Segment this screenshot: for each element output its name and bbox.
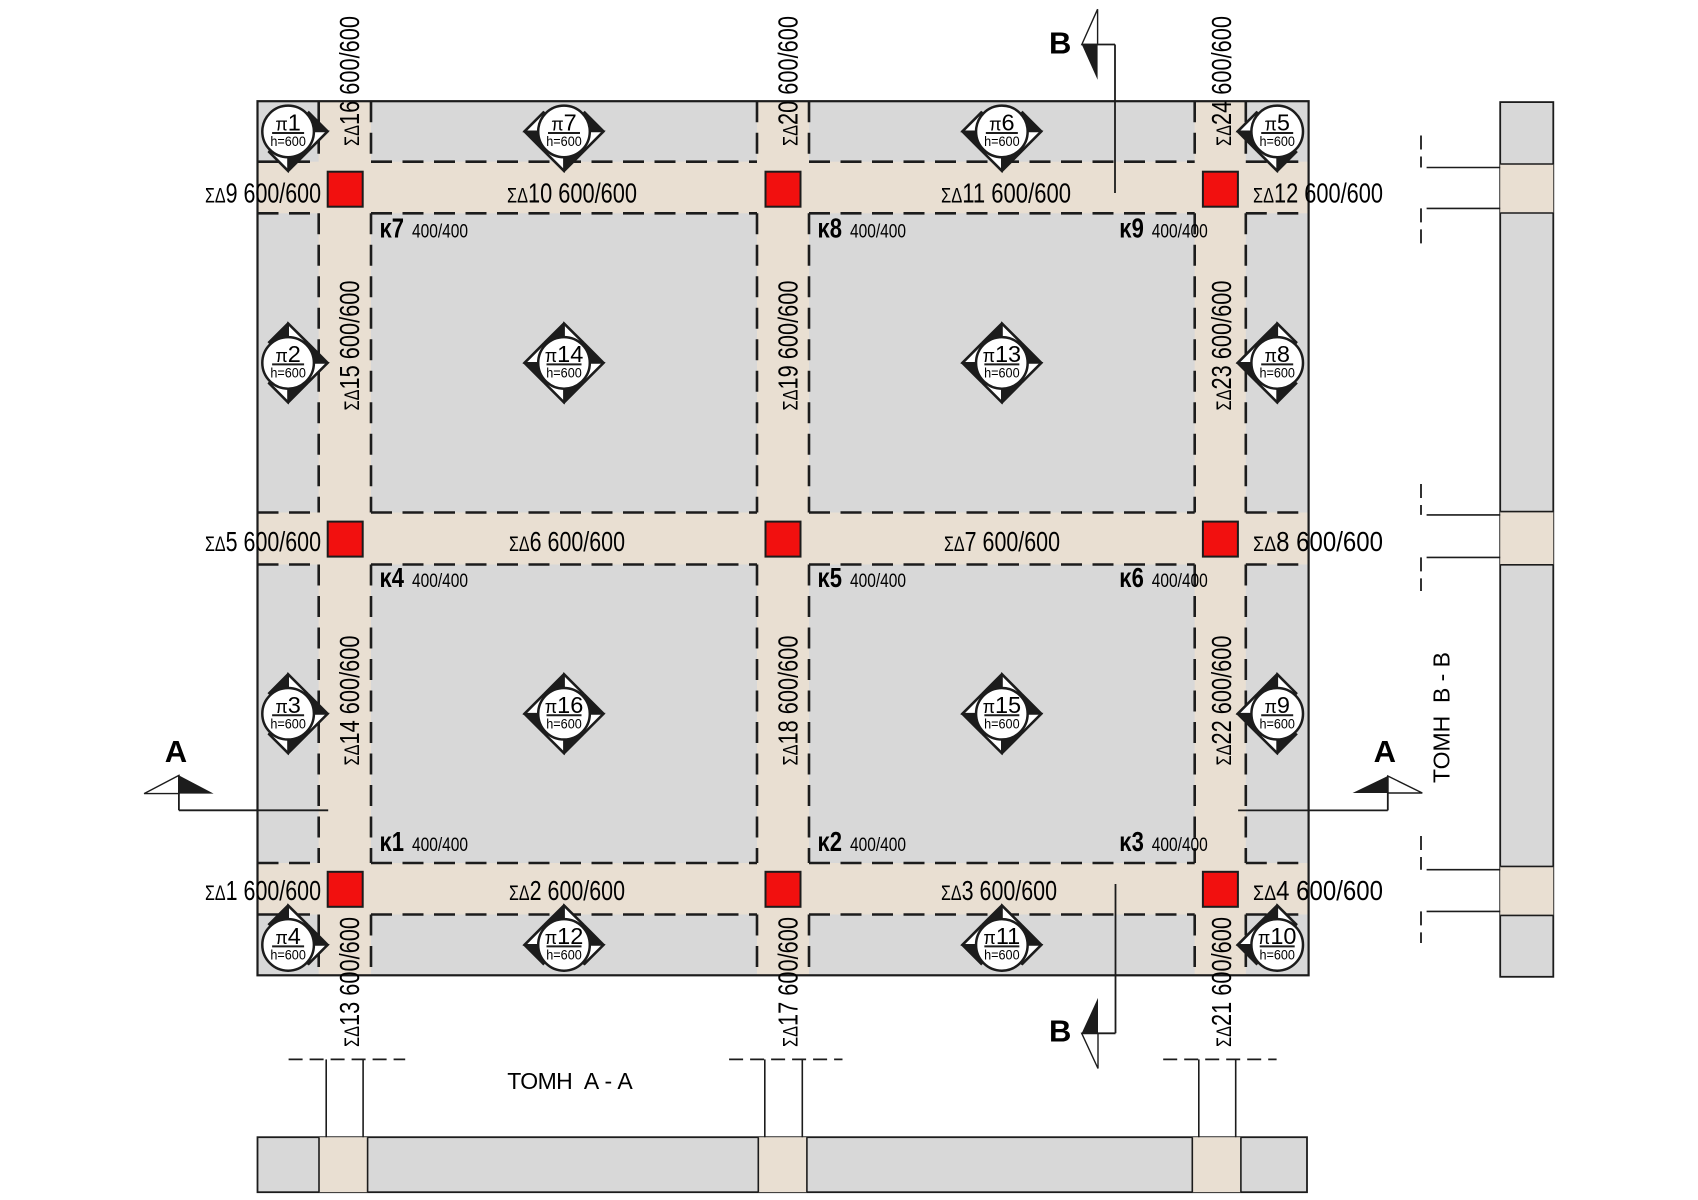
svg-text:400/400: 400/400 bbox=[1152, 571, 1208, 592]
svg-text:TOMH A - A: TOMH A - A bbox=[507, 1068, 633, 1094]
svg-text:B: B bbox=[1049, 1014, 1071, 1049]
svg-text:h=600: h=600 bbox=[1259, 716, 1295, 731]
svg-text:h=600: h=600 bbox=[1259, 365, 1295, 380]
svg-text:400/400: 400/400 bbox=[412, 221, 468, 242]
svg-text:h=600: h=600 bbox=[546, 716, 582, 731]
svg-text:κ2: κ2 bbox=[818, 826, 843, 857]
svg-text:h=600: h=600 bbox=[984, 134, 1020, 149]
svg-text:400/400: 400/400 bbox=[412, 835, 468, 856]
svg-text:400/400: 400/400 bbox=[850, 221, 906, 242]
svg-text:h=600: h=600 bbox=[984, 947, 1020, 962]
svg-text:h=600: h=600 bbox=[1259, 947, 1295, 962]
svg-text:h=600: h=600 bbox=[546, 365, 582, 380]
svg-text:h=600: h=600 bbox=[270, 365, 306, 380]
svg-text:κ1: κ1 bbox=[380, 826, 405, 857]
svg-text:A: A bbox=[165, 734, 187, 769]
svg-text:400/400: 400/400 bbox=[850, 571, 906, 592]
svg-text:h=600: h=600 bbox=[270, 716, 306, 731]
svg-text:400/400: 400/400 bbox=[850, 835, 906, 856]
svg-text:A: A bbox=[1374, 734, 1396, 769]
svg-text:B: B bbox=[1049, 26, 1071, 61]
svg-text:κ4: κ4 bbox=[380, 562, 405, 593]
svg-text:κ8: κ8 bbox=[818, 212, 843, 243]
svg-text:h=600: h=600 bbox=[270, 134, 306, 149]
svg-text:h=600: h=600 bbox=[270, 947, 306, 962]
svg-text:400/400: 400/400 bbox=[1152, 221, 1208, 242]
svg-text:κ9: κ9 bbox=[1119, 212, 1144, 243]
svg-text:κ6: κ6 bbox=[1119, 562, 1144, 593]
svg-text:κ5: κ5 bbox=[818, 562, 843, 593]
svg-text:κ3: κ3 bbox=[1119, 826, 1144, 857]
svg-text:h=600: h=600 bbox=[546, 947, 582, 962]
svg-text:h=600: h=600 bbox=[984, 716, 1020, 731]
svg-text:κ7: κ7 bbox=[380, 212, 405, 243]
svg-text:400/400: 400/400 bbox=[1152, 835, 1208, 856]
svg-text:TOMH B - B: TOMH B - B bbox=[1429, 652, 1455, 783]
svg-text:h=600: h=600 bbox=[1259, 134, 1295, 149]
svg-text:400/400: 400/400 bbox=[412, 571, 468, 592]
svg-text:h=600: h=600 bbox=[546, 134, 582, 149]
svg-text:h=600: h=600 bbox=[984, 365, 1020, 380]
